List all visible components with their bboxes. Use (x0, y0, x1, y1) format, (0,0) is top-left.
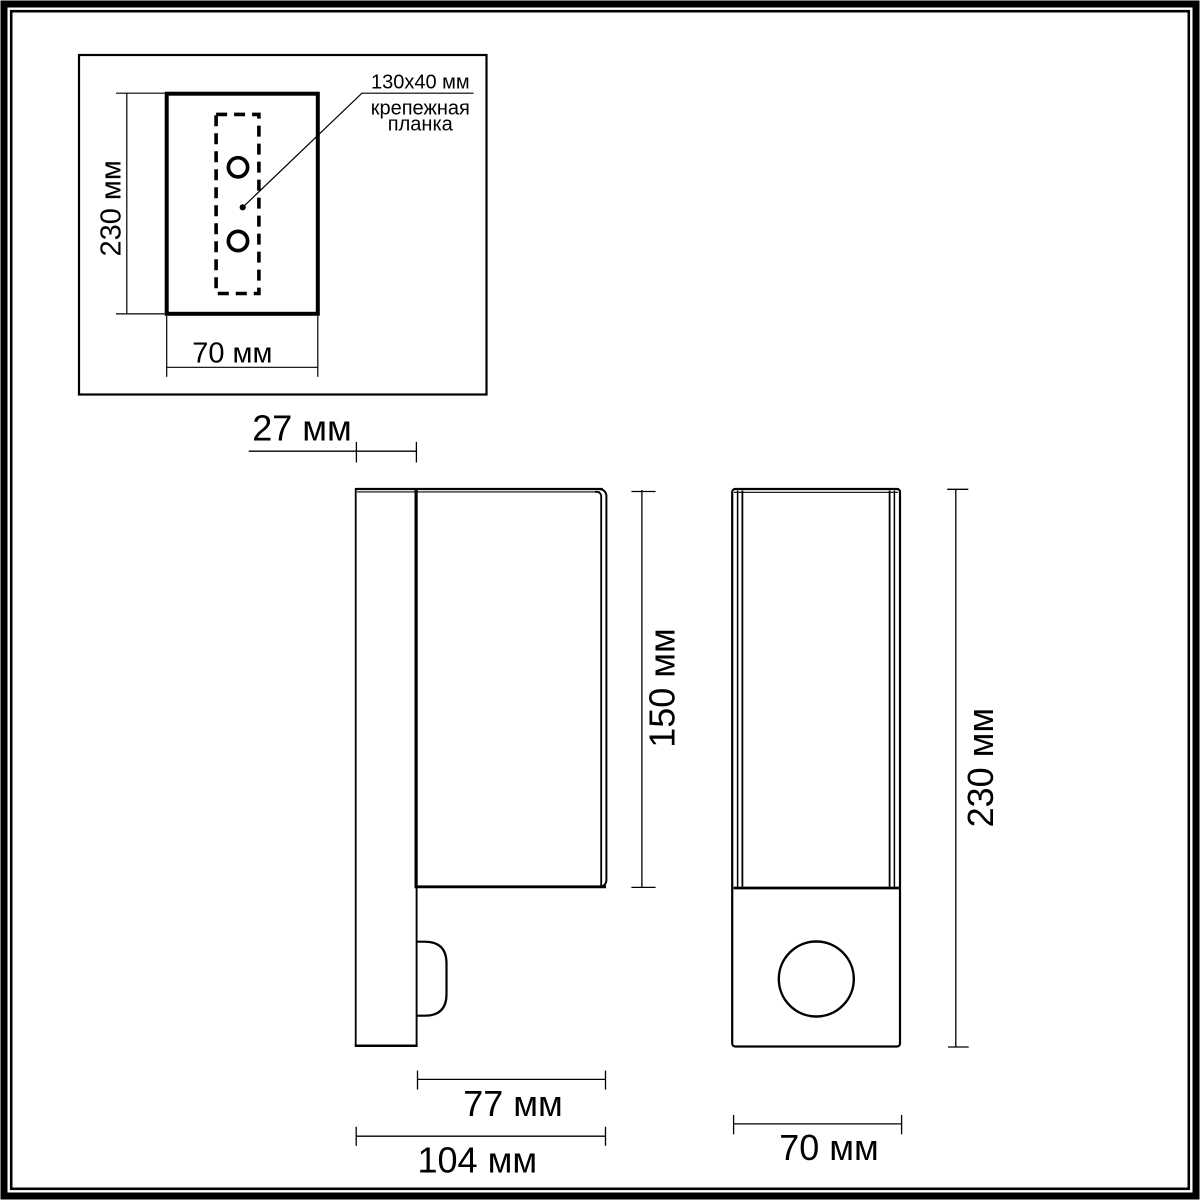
svg-text:70 мм: 70 мм (192, 338, 272, 370)
svg-text:70 мм: 70 мм (779, 1127, 879, 1168)
svg-text:230 мм: 230 мм (960, 708, 1001, 828)
svg-text:планка: планка (388, 114, 454, 136)
svg-text:150 мм: 150 мм (642, 628, 683, 748)
svg-text:27 мм: 27 мм (252, 408, 352, 449)
svg-text:230 мм: 230 мм (95, 160, 127, 256)
svg-text:104 мм: 104 мм (418, 1140, 538, 1181)
svg-text:130x40 мм: 130x40 мм (371, 72, 470, 94)
svg-text:77 мм: 77 мм (463, 1083, 563, 1124)
